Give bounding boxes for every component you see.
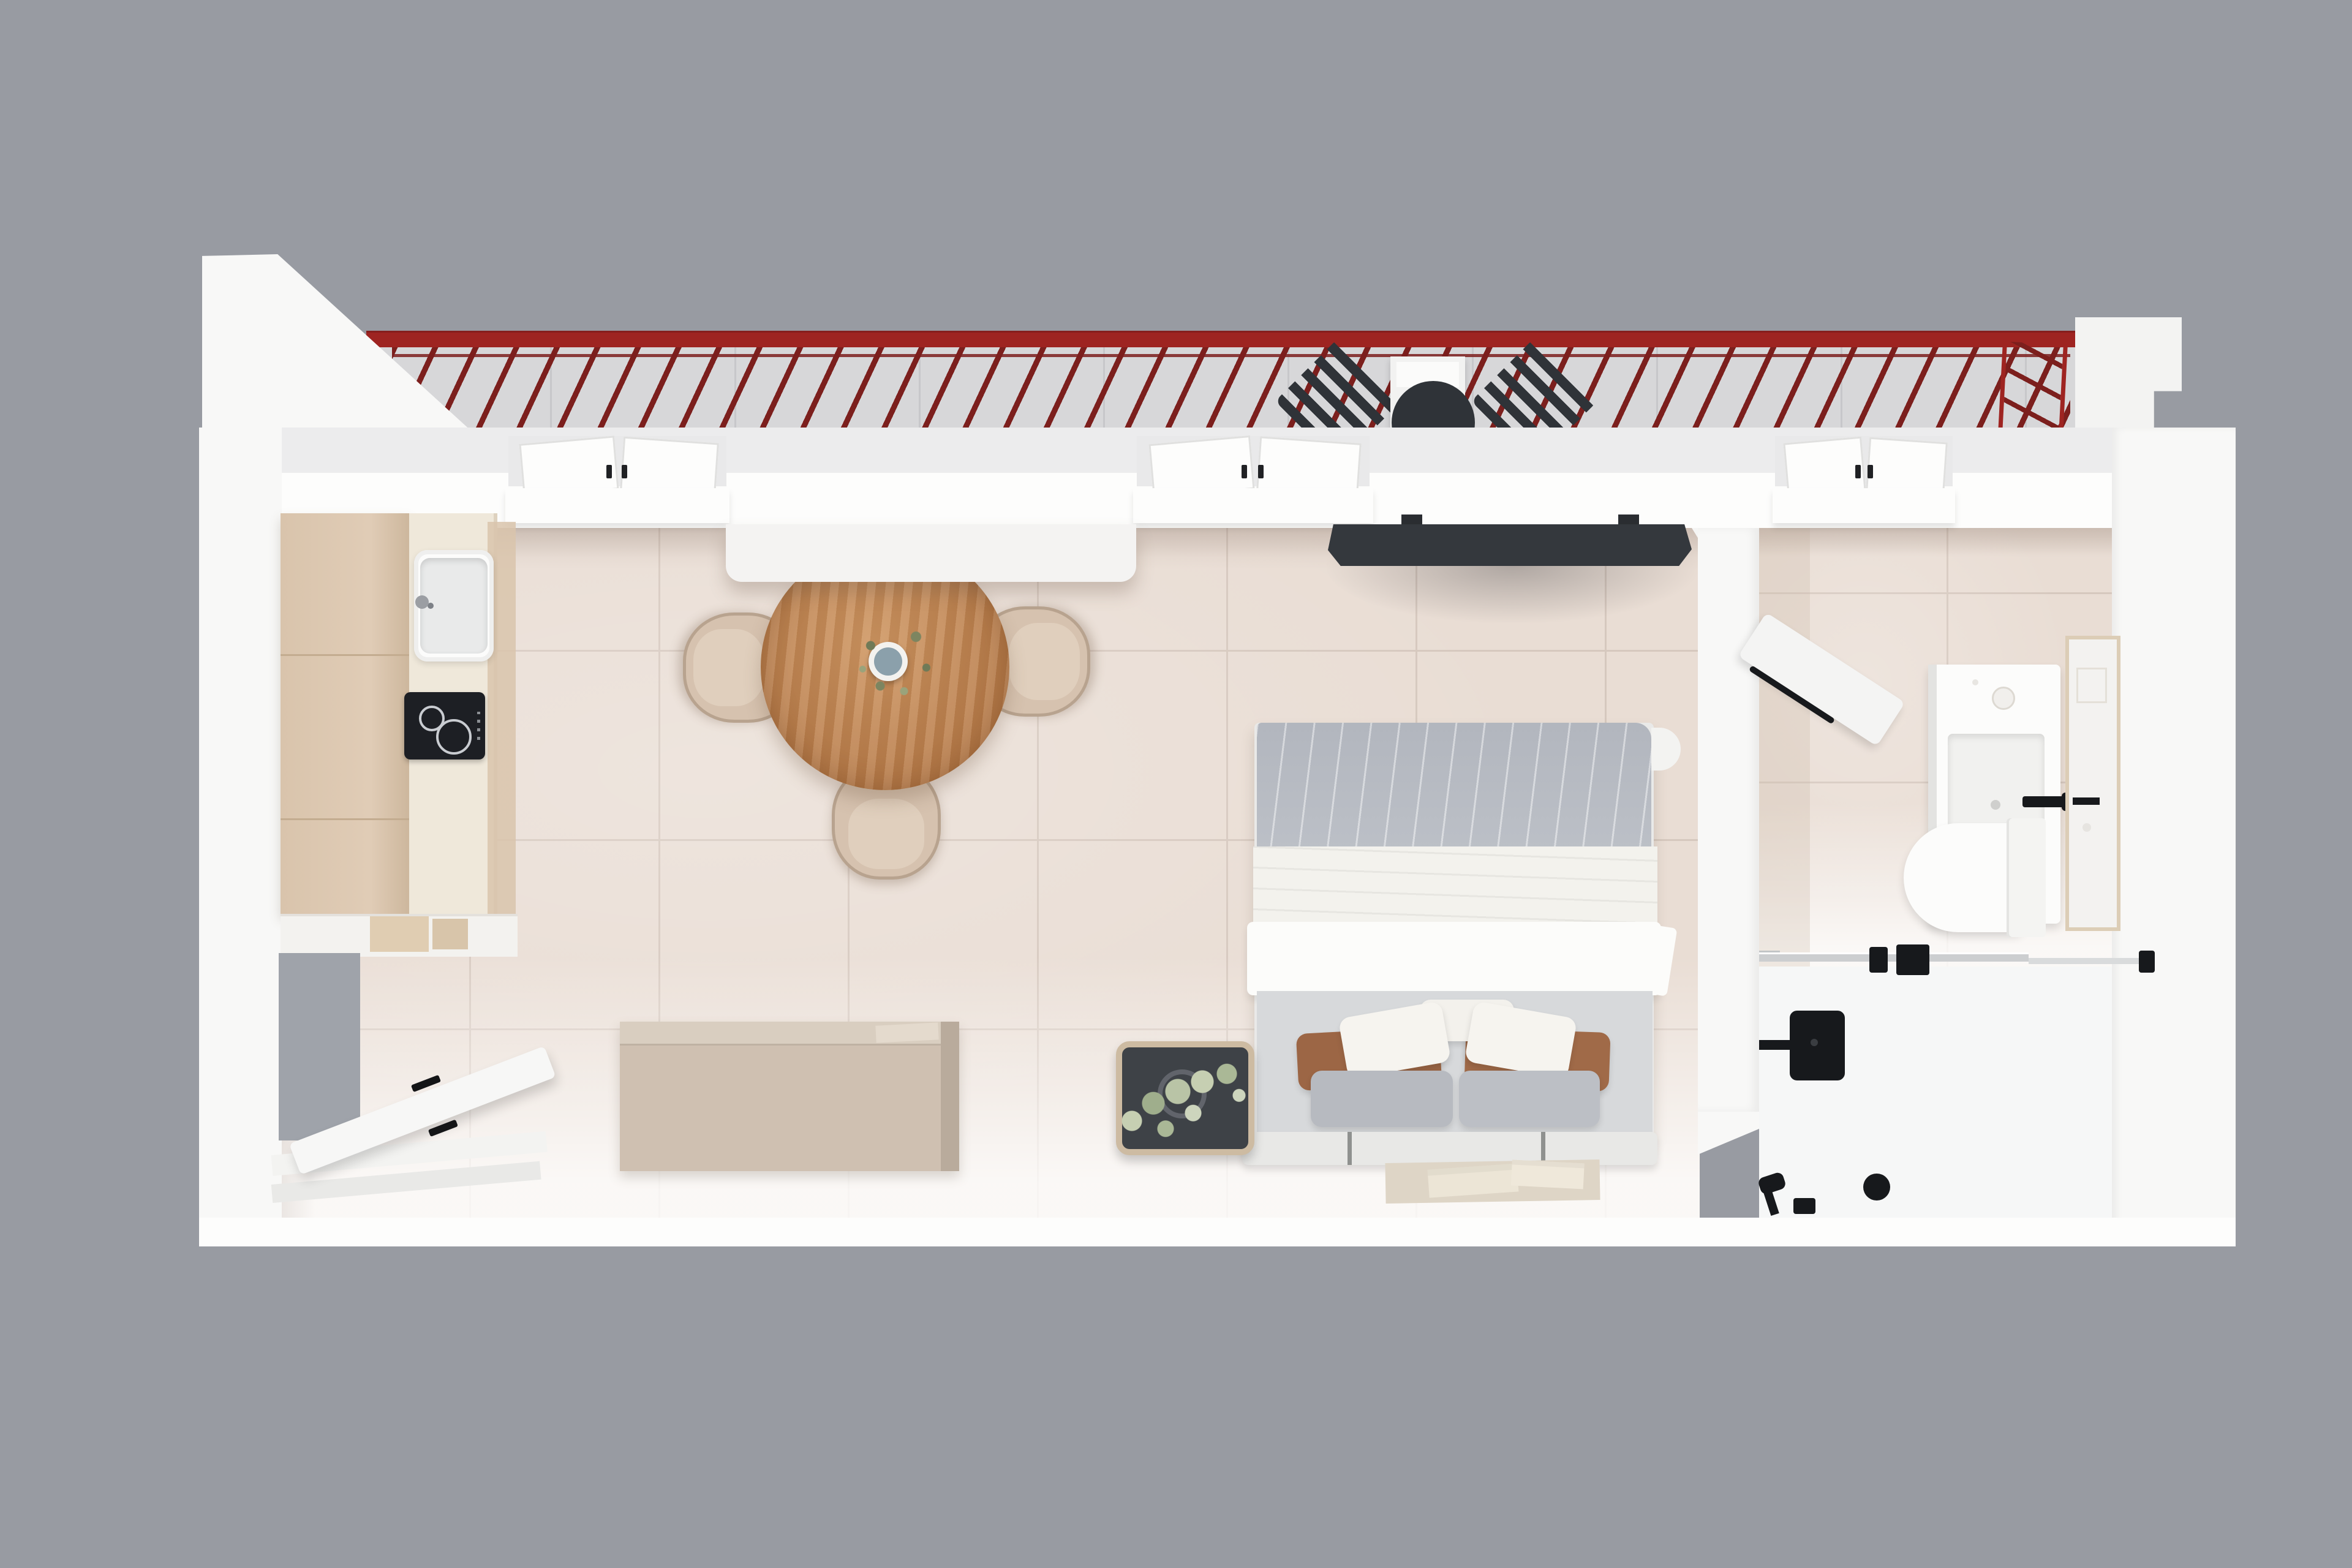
- left-wall: [199, 428, 282, 1246]
- trailing-plant: [1101, 1052, 1254, 1150]
- entry-mat: [279, 953, 360, 1140]
- sideboard: [620, 1022, 959, 1171]
- right-wall: [2112, 428, 2236, 1246]
- cabinet-seam: [281, 818, 409, 820]
- papers: [1511, 1159, 1585, 1189]
- sideboard-lid-seam: [620, 1044, 959, 1046]
- tall-cabinet-run: [281, 513, 409, 914]
- chair-seat: [693, 629, 764, 706]
- toiletry-item: [1972, 679, 1978, 685]
- screen-clamp: [1896, 944, 1929, 975]
- pillow-gray-left: [1311, 1071, 1453, 1127]
- papers: [1428, 1164, 1519, 1198]
- window-sash: [1866, 437, 1948, 497]
- shower-mixer: [1790, 1011, 1845, 1080]
- window-sill: [505, 488, 730, 523]
- burner-large: [436, 719, 472, 755]
- chimney-block: [2075, 317, 2182, 445]
- chair-seat: [1009, 623, 1080, 700]
- window-sill: [1773, 488, 1956, 523]
- counter-box: [432, 919, 468, 949]
- divider-wall-end: [1698, 1112, 1759, 1155]
- sideboard-open-lid: [875, 1022, 938, 1042]
- bench-strap: [1347, 1132, 1352, 1165]
- chair-seat: [848, 799, 925, 869]
- window-handle: [622, 465, 627, 478]
- pillow-gray-right: [1459, 1071, 1600, 1127]
- railing-mid-bar: [392, 354, 2070, 357]
- mirror-faucet-reflection: [2073, 797, 2100, 805]
- shower-glass-screen: [1759, 954, 2029, 962]
- floor-plan-render: [0, 0, 2352, 1568]
- floor-drain: [1863, 1174, 1890, 1200]
- divider-wall: [1698, 528, 1759, 1112]
- towel-rail-right: [2029, 958, 2154, 964]
- casement-window-bath: [1775, 436, 1953, 533]
- cabinet-seam: [281, 654, 409, 656]
- casement-window-west: [508, 436, 726, 533]
- gray-duvet: [1257, 723, 1651, 851]
- bathroom-left-wall-face: [1759, 528, 1810, 968]
- railing-balusters: [392, 347, 2070, 429]
- bottom-wall: [199, 1218, 2236, 1246]
- sink-faucet: [415, 595, 429, 609]
- railing-top-bar: [366, 331, 2075, 347]
- window-handle: [1868, 465, 1873, 478]
- window-handle: [1242, 465, 1247, 478]
- shower-bracket: [1793, 1198, 1815, 1214]
- induction-cooktop: [404, 692, 485, 759]
- window-sill: [1133, 488, 1373, 523]
- sink-basin: [420, 558, 488, 654]
- basin-drain: [1991, 800, 2000, 810]
- mixer-stem: [1759, 1040, 1792, 1050]
- white-duvet: [1247, 922, 1661, 995]
- wall-hung-toilet: [1904, 823, 2022, 932]
- toilet-tank: [2007, 818, 2046, 937]
- shower-tray: [1759, 967, 2112, 1218]
- tv-panel: [1328, 524, 1692, 566]
- mirror-reflection: [2076, 668, 2107, 703]
- soap-dish: [1992, 687, 2015, 710]
- kitchen-sink: [414, 550, 494, 661]
- mirror-dot: [2082, 823, 2091, 832]
- counter-box: [370, 916, 429, 952]
- window-handle: [1855, 465, 1861, 478]
- screen-clamp: [1869, 947, 1888, 973]
- window-handle: [1258, 465, 1264, 478]
- rail-end-cap: [2139, 951, 2155, 973]
- bedside-rug: [1385, 1159, 1600, 1204]
- centerpiece-sprigs: [856, 624, 936, 697]
- mirror-cabinet: [2065, 636, 2120, 931]
- mixer-dot: [1811, 1039, 1818, 1046]
- cooktop-controls: [477, 712, 480, 740]
- wall-pillar: [726, 524, 1136, 582]
- folded-sheet: [1253, 846, 1657, 931]
- sideboard-side: [941, 1022, 959, 1171]
- casement-window-east: [1137, 436, 1370, 533]
- window-handle: [606, 465, 612, 478]
